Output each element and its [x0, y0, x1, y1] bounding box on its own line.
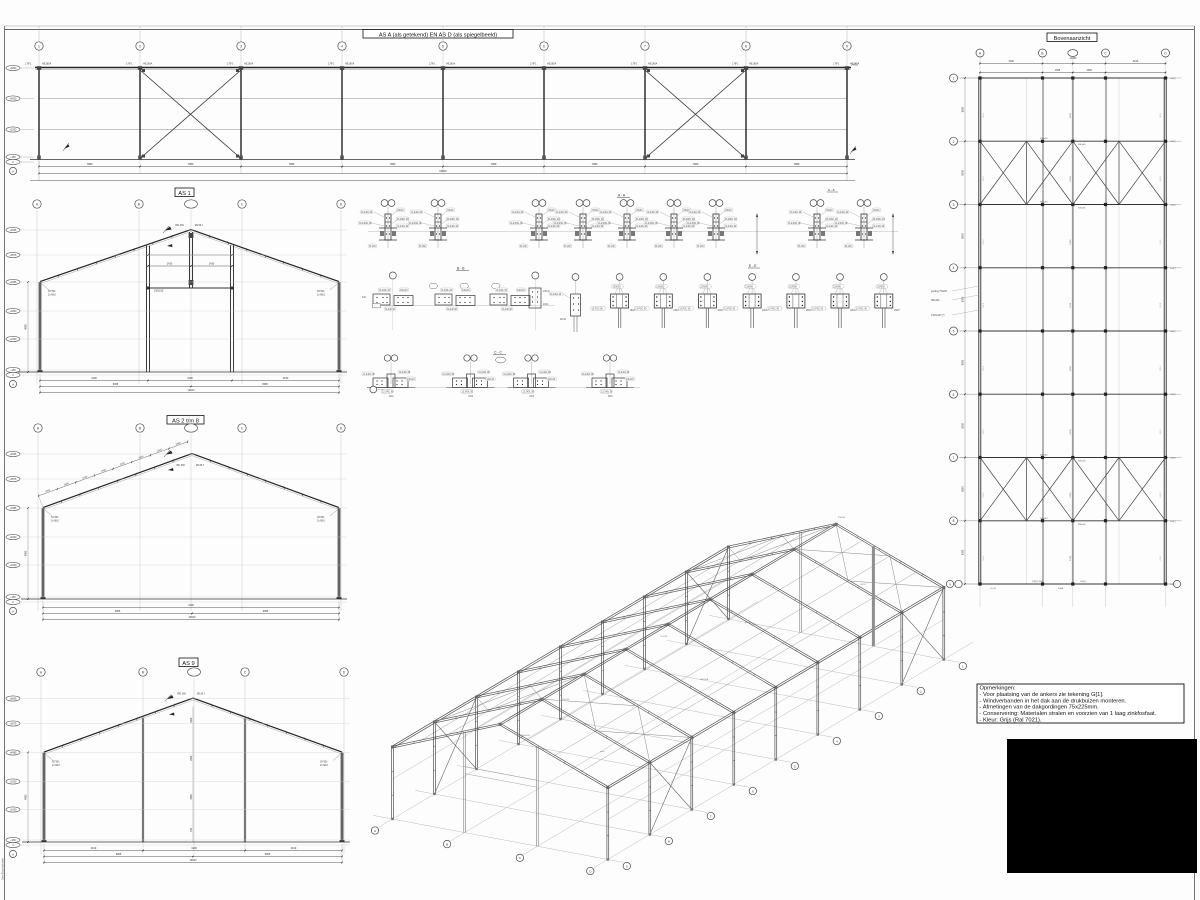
- svg-text:- Windverbanden in het dak aan: - Windverbanden in het dak aan de drukbu…: [980, 698, 1127, 704]
- svg-text:CL240L 90: CL240L 90: [873, 226, 885, 228]
- svg-text:M16: M16: [469, 396, 474, 398]
- svg-text:6: 6: [953, 393, 955, 397]
- svg-text:Ø139.7: Ø139.7: [197, 693, 206, 696]
- svg-text:- Voor plaatsing van de ankers: - Voor plaatsing van de ankers zie teken…: [980, 692, 1104, 698]
- svg-text:CL240SL 90: CL240SL 90: [835, 223, 848, 225]
- svg-text:PL150: PL150: [697, 246, 704, 248]
- svg-text:K100x100 (*): K100x100 (*): [931, 315, 945, 317]
- svg-text:CL240SL 90: CL240SL 90: [598, 223, 611, 225]
- svg-text:4: 4: [341, 45, 343, 49]
- svg-text:CL240L 90: CL240L 90: [636, 226, 648, 228]
- svg-text:240(*): 240(*): [1170, 78, 1176, 80]
- svg-text:+1600: +1600: [10, 338, 17, 341]
- svg-text:3190: 3190: [187, 377, 193, 380]
- svg-text:K80x80: K80x80: [1040, 518, 1048, 520]
- svg-text:3190: 3190: [91, 847, 97, 850]
- svg-text:240A: 240A: [543, 303, 549, 306]
- svg-text:13A090: 13A090: [656, 286, 665, 289]
- svg-text:79040: 79040: [548, 210, 555, 212]
- svg-text:240x15: 240x15: [462, 290, 470, 292]
- svg-text:K80x80: K80x80: [1040, 455, 1048, 457]
- svg-text:+5575: +5575: [10, 254, 17, 257]
- svg-text:11380: 11380: [1070, 57, 1077, 60]
- svg-text:160.8: 160.8: [983, 302, 985, 308]
- svg-text:178*1: 178*1: [429, 63, 436, 66]
- svg-text:1595: 1595: [1087, 70, 1093, 72]
- svg-text:160.8: 160.8: [983, 429, 985, 435]
- svg-text:CL240L 90: CL240L 90: [826, 226, 838, 228]
- svg-text:79040: 79040: [873, 210, 880, 212]
- svg-text:6: 6: [543, 45, 545, 49]
- svg-text:160.8: 160.8: [1160, 302, 1162, 308]
- svg-text:1: 1: [38, 45, 40, 49]
- svg-text:CL240L 90: CL240L 90: [411, 212, 423, 214]
- svg-text:+5575: +5575: [10, 478, 17, 481]
- svg-text:19930: 19930: [190, 859, 198, 862]
- svg-text:8000: 8000: [962, 423, 965, 429]
- svg-text:4985: 4985: [25, 550, 28, 556]
- svg-text:CL240L 90: CL240L 90: [397, 226, 409, 228]
- svg-text:19930: 19930: [189, 616, 197, 619]
- svg-text:IPE360: IPE360: [838, 517, 846, 519]
- svg-text:3190: 3190: [283, 377, 289, 380]
- svg-text:K150: K150: [1070, 239, 1072, 245]
- svg-text:7980: 7980: [289, 162, 295, 166]
- svg-text:PL290C 90: PL290C 90: [725, 219, 737, 221]
- svg-text:K100x100: K100x100: [520, 735, 531, 737]
- svg-text:4985: 4985: [25, 794, 28, 800]
- svg-text:CL240SL 90: CL240SL 90: [554, 223, 567, 225]
- svg-text:3: 3: [240, 45, 242, 49]
- svg-text:A - A: A - A: [618, 194, 626, 198]
- svg-text:K80x80: K80x80: [1078, 524, 1086, 526]
- svg-text:K80x80: K80x80: [1078, 208, 1086, 210]
- svg-text:CL240SL 90: CL240SL 90: [645, 223, 658, 225]
- svg-text:HE180A: HE180A: [446, 63, 456, 66]
- svg-text:3190: 3190: [1133, 60, 1139, 63]
- svg-text:K150: K150: [1070, 365, 1072, 371]
- svg-text:PL290C 90: PL290C 90: [548, 219, 560, 221]
- svg-text:5: 5: [442, 45, 444, 49]
- svg-text:160.8: 160.8: [1160, 112, 1162, 118]
- svg-text:9965: 9965: [263, 610, 269, 613]
- svg-text:Opmerkingen:: Opmerkingen:: [980, 686, 1017, 692]
- svg-text:CL240L 90: CL240L 90: [618, 372, 630, 374]
- svg-text:+4200: +4200: [10, 98, 17, 101]
- svg-text:7980: 7980: [87, 162, 93, 166]
- svg-text:13.PSC 90: 13.PSC 90: [812, 309, 824, 311]
- svg-text:178*1: 178*1: [833, 63, 840, 66]
- svg-text:79040: 79040: [592, 210, 599, 212]
- svg-text:7980: 7980: [794, 162, 800, 166]
- svg-text:13.PSC 90: 13.PSC 90: [635, 309, 647, 311]
- svg-text:240(*): 240(*): [1170, 521, 1176, 523]
- svg-text:19930: 19930: [188, 389, 196, 392]
- svg-text:PL290C 90: PL290C 90: [636, 219, 648, 221]
- svg-text:AS 2 t/m 8: AS 2 t/m 8: [172, 418, 199, 424]
- svg-text:E - E: E - E: [749, 264, 757, 268]
- svg-text:+4985: +4985: [10, 281, 17, 284]
- svg-text:B: B: [142, 671, 144, 675]
- svg-text:C - C: C - C: [494, 351, 502, 355]
- svg-text:K150: K150: [1070, 555, 1072, 561]
- svg-text:160.8: 160.8: [1160, 492, 1162, 498]
- svg-text:13A090: 13A090: [833, 286, 842, 289]
- svg-text:9965: 9965: [116, 853, 122, 856]
- svg-text:160.8: 160.8: [1160, 555, 1162, 561]
- svg-text:K80x80: K80x80: [1078, 144, 1086, 146]
- svg-text:1430: 1430: [209, 263, 215, 266]
- svg-text:A: A: [12, 169, 14, 173]
- svg-text:M16: M16: [389, 396, 394, 398]
- svg-text:160.81: 160.81: [990, 588, 997, 590]
- svg-text:M16: M16: [608, 396, 613, 398]
- svg-text:240x15: 240x15: [517, 290, 525, 292]
- svg-text:+1600: +1600: [10, 809, 17, 812]
- svg-text:CL240C 90: CL240C 90: [443, 374, 455, 376]
- svg-text:9965: 9965: [265, 853, 271, 856]
- svg-text:B: B: [138, 203, 140, 207]
- svg-text:+3200: +3200: [10, 536, 17, 539]
- svg-text:B - B: B - B: [457, 267, 465, 271]
- svg-text:8000: 8000: [962, 170, 965, 176]
- svg-text:+150: +150: [10, 839, 16, 842]
- svg-text:VL240L 90: VL240L 90: [379, 290, 391, 292]
- svg-text:9965: 9965: [113, 383, 119, 386]
- svg-text:4985: 4985: [190, 794, 193, 800]
- svg-text:160.8: 160.8: [983, 555, 985, 561]
- svg-text:gord.: gord.: [600, 750, 605, 753]
- svg-text:13A090: 13A090: [877, 286, 886, 289]
- svg-text:CL240L 90: CL240L 90: [689, 212, 701, 214]
- svg-text:240(1) 240: 240(1) 240: [1032, 581, 1043, 583]
- svg-text:K80x80: K80x80: [1040, 138, 1048, 140]
- svg-text:CL240SL 90: CL240SL 90: [359, 223, 372, 225]
- svg-text:160.8: 160.8: [983, 365, 985, 371]
- svg-text:240(1): 240(1): [543, 291, 550, 293]
- svg-text:gording 75x225: gording 75x225: [931, 290, 948, 293]
- svg-text:8000: 8000: [962, 359, 965, 365]
- svg-text:178*1: 178*1: [328, 63, 335, 66]
- svg-text:HE180A: HE180A: [749, 63, 759, 66]
- svg-text:240x15: 240x15: [407, 379, 415, 381]
- svg-text:CL240C 90: CL240C 90: [582, 374, 594, 376]
- svg-text:WL90: WL90: [560, 319, 567, 321]
- svg-text:AS A (als getekend) EN AS D (a: AS A (als getekend) EN AS D (als spiegel…: [379, 32, 497, 38]
- svg-text:CL240L 90: CL240L 90: [512, 212, 524, 214]
- svg-text:13A090: 13A090: [700, 286, 709, 289]
- svg-text:180A*: 180A*: [717, 309, 723, 312]
- svg-text:13.PSC 90: 13.PSC 90: [679, 309, 691, 311]
- svg-text:+150: +150: [10, 596, 16, 599]
- svg-text:160.8: 160.8: [1160, 429, 1162, 435]
- svg-text:PL150: PL150: [520, 246, 527, 248]
- svg-text:B: B: [139, 427, 141, 431]
- svg-text:7: 7: [644, 45, 646, 49]
- svg-text:IPE 360: IPE 360: [175, 224, 185, 227]
- svg-text:CL240L 90: CL240L 90: [550, 294, 562, 296]
- svg-text:PL150: PL150: [798, 246, 805, 248]
- svg-text:8000: 8000: [962, 549, 965, 555]
- svg-text:178*1: 178*1: [732, 63, 739, 66]
- svg-text:HE180A: HE180A: [42, 63, 52, 66]
- svg-text:240(*): 240(*): [1170, 205, 1176, 207]
- svg-text:7980: 7980: [693, 162, 699, 166]
- svg-text:CL240SL 90: CL240SL 90: [409, 223, 422, 225]
- svg-text:4: 4: [953, 266, 955, 270]
- svg-text:7: 7: [953, 456, 955, 460]
- svg-text:9965: 9965: [115, 610, 121, 613]
- svg-text:160.8: 160.8: [983, 239, 985, 245]
- svg-text:a - a: a - a: [828, 188, 835, 192]
- svg-text:PL150: PL150: [655, 246, 662, 248]
- svg-text:CL240 90: CL240 90: [385, 309, 396, 311]
- svg-text:160.8: 160.8: [1160, 176, 1162, 182]
- svg-text:+5575: +5575: [10, 723, 17, 726]
- svg-text:3190: 3190: [291, 847, 297, 850]
- svg-text:PL290C 90: PL290C 90: [683, 219, 695, 221]
- svg-text:240x15: 240x15: [487, 379, 495, 381]
- svg-text:150: 150: [190, 827, 193, 832]
- svg-text:7980: 7980: [592, 162, 598, 166]
- svg-text:HE180A: HE180A: [244, 63, 254, 66]
- svg-text:240x15: 240x15: [548, 379, 556, 381]
- svg-text:2x M16: 2x M16: [48, 294, 57, 297]
- svg-text:3190: 3190: [1009, 60, 1015, 63]
- svg-text:CL240 90: CL240 90: [447, 309, 458, 311]
- svg-text:CL240C 90: CL240C 90: [504, 374, 516, 376]
- svg-text:- Afmetingen van de dakgording: - Afmetingen van de dakgordingen 75x225m…: [980, 705, 1100, 711]
- svg-text:240x15: 240x15: [400, 290, 408, 292]
- svg-text:13A090: 13A090: [745, 286, 754, 289]
- svg-text:240(*): 240(*): [1170, 584, 1176, 586]
- svg-text:PL290C 90: PL290C 90: [397, 219, 409, 221]
- svg-text:2x M16: 2x M16: [317, 520, 326, 523]
- svg-text:178*1: 178*1: [530, 63, 537, 66]
- svg-text:7980: 7980: [188, 162, 194, 166]
- svg-text:CL240SL 90: CL240SL 90: [788, 223, 801, 225]
- svg-text:160.8: 160.8: [1160, 239, 1162, 245]
- svg-text:13.PSC 90: 13.PSC 90: [856, 309, 868, 311]
- svg-text:HE180A: HE180A: [648, 63, 658, 66]
- svg-text:240(*): 240(*): [1170, 394, 1176, 396]
- svg-text:2x M16: 2x M16: [317, 294, 326, 297]
- svg-text:2x M16: 2x M16: [320, 764, 329, 767]
- svg-text:3190: 3190: [188, 604, 194, 607]
- svg-text:PL290C 90: PL290C 90: [873, 219, 885, 221]
- svg-text:240(*): 240(*): [1170, 141, 1176, 143]
- svg-text:VL240L 90: VL240L 90: [441, 290, 453, 292]
- svg-text:VL240L 90: VL240L 90: [496, 290, 508, 292]
- svg-text:8000: 8000: [962, 233, 965, 239]
- svg-text:13.240L 90: 13.240L 90: [601, 392, 613, 394]
- svg-text:1560: 1560: [190, 717, 193, 723]
- svg-text:8000: 8000: [962, 106, 965, 112]
- svg-text:13A090: 13A090: [613, 286, 622, 289]
- svg-text:+2200: +2200: [10, 129, 17, 132]
- svg-text:2: 2: [139, 45, 141, 49]
- svg-text:13.PSC 90: 13.PSC 90: [592, 309, 604, 311]
- svg-text:+3200: +3200: [10, 310, 17, 313]
- svg-text:Ø139.7: Ø139.7: [195, 224, 204, 227]
- svg-text:A: A: [12, 609, 14, 613]
- svg-text:178*1: 178*1: [25, 63, 32, 66]
- svg-text:3190: 3190: [91, 377, 97, 380]
- svg-text:13.240L 90: 13.240L 90: [523, 392, 535, 394]
- svg-text:75x225: 75x225: [660, 636, 668, 638]
- svg-text:160.8: 160.8: [983, 492, 985, 498]
- svg-text:1595: 1595: [1055, 70, 1061, 72]
- svg-text:160.8: 160.8: [1160, 365, 1162, 371]
- svg-text:2x M16: 2x M16: [51, 520, 60, 523]
- svg-text:9: 9: [846, 45, 848, 49]
- svg-text:+4985: +4985: [10, 752, 17, 755]
- svg-text:IPE 360: IPE 360: [176, 464, 186, 467]
- svg-text:CL240L 90: CL240L 90: [447, 226, 459, 228]
- svg-text:CL240L 90: CL240L 90: [725, 226, 737, 228]
- svg-text:A: A: [12, 852, 14, 856]
- svg-text:79040: 79040: [397, 210, 404, 212]
- svg-text:CL240C 90: CL240C 90: [363, 374, 375, 376]
- svg-text:3190: 3190: [191, 847, 197, 850]
- svg-text:150x150: 150x150: [154, 290, 164, 293]
- svg-text:+6065: +6065: [10, 453, 17, 456]
- svg-text:K100: K100: [745, 622, 751, 624]
- svg-text:CL240L 90: CL240L 90: [399, 372, 411, 374]
- svg-text:1430: 1430: [167, 263, 173, 266]
- svg-text:PL290C 90: PL290C 90: [592, 219, 604, 221]
- svg-text:178*1: 178*1: [126, 63, 133, 66]
- svg-text:240(*): 240(*): [1170, 331, 1176, 333]
- svg-text:- Conservering: Materialen str: - Conservering: Materialen stralen en vo…: [980, 711, 1157, 717]
- svg-text:3: 3: [953, 203, 955, 207]
- svg-text:+6065: +6065: [10, 698, 17, 701]
- svg-text:79040: 79040: [636, 210, 643, 212]
- svg-text:240(*): 240(*): [1170, 268, 1176, 270]
- svg-text:79040: 79040: [826, 210, 833, 212]
- svg-text:B: B: [1041, 52, 1043, 56]
- svg-text:13.240L 90: 13.240L 90: [462, 392, 474, 394]
- svg-text:A: A: [12, 382, 14, 386]
- svg-text:79040: 79040: [725, 210, 732, 212]
- svg-text:+150: +150: [10, 369, 16, 372]
- svg-text:7980: 7980: [390, 162, 396, 166]
- svg-text:B: B: [446, 843, 448, 847]
- svg-text:178*1: 178*1: [631, 63, 638, 66]
- svg-text:160.8: 160.8: [983, 112, 985, 118]
- svg-text:HE180A: HE180A: [345, 63, 355, 66]
- svg-text:PL150: PL150: [845, 246, 852, 248]
- svg-text:1560: 1560: [190, 755, 193, 761]
- svg-text:K150: K150: [1070, 112, 1072, 118]
- svg-text:CL240L 90: CL240L 90: [540, 372, 552, 374]
- svg-text:M16: M16: [530, 396, 535, 398]
- svg-text:Bovenaanzicht: Bovenaanzicht: [1054, 36, 1091, 42]
- svg-text:CL240L 90: CL240L 90: [479, 372, 491, 374]
- svg-text:240(1): 240(1): [851, 64, 858, 67]
- svg-text:8000: 8000: [962, 486, 965, 492]
- svg-text:13.PSC 90: 13.PSC 90: [724, 309, 736, 311]
- svg-text:AS 9: AS 9: [182, 661, 195, 667]
- svg-text:K150: K150: [1070, 302, 1072, 308]
- svg-text:- Kleur: Grijs (Ral 7021).: - Kleur: Grijs (Ral 7021).: [980, 717, 1042, 723]
- svg-text:HE180A: HE180A: [547, 63, 557, 66]
- svg-text:+6000: +6000: [10, 67, 17, 70]
- svg-text:79040: 79040: [447, 210, 454, 212]
- svg-text:+3200: +3200: [10, 781, 17, 784]
- svg-text:+6065: +6065: [10, 229, 17, 232]
- svg-text:CL240L 90: CL240L 90: [790, 212, 802, 214]
- svg-text:K150: K150: [1070, 176, 1072, 182]
- svg-text:1: 1: [953, 77, 955, 81]
- svg-text:PL290C 90: PL290C 90: [826, 219, 838, 221]
- svg-text:63840: 63840: [439, 169, 447, 173]
- svg-text:K150: K150: [1070, 492, 1072, 498]
- svg-text:PL150: PL150: [564, 246, 571, 248]
- svg-text:9965: 9965: [262, 383, 268, 386]
- svg-text:2x M16: 2x M16: [52, 764, 61, 767]
- svg-text:CL240L 90: CL240L 90: [361, 212, 373, 214]
- svg-text:K80x80: K80x80: [1040, 202, 1048, 204]
- svg-text:CL240L 90: CL240L 90: [837, 212, 849, 214]
- svg-text:160.8: 160.8: [860, 584, 866, 586]
- svg-text:IPE 360: IPE 360: [177, 693, 187, 696]
- svg-text:PL150: PL150: [369, 246, 376, 248]
- svg-text:PL150: PL150: [608, 246, 615, 248]
- svg-text:240x15: 240x15: [626, 379, 634, 381]
- svg-text:13.PSC 90: 13.PSC 90: [768, 309, 780, 311]
- svg-text:Ø139.7: Ø139.7: [196, 464, 205, 467]
- svg-text:13.240L 90: 13.240L 90: [382, 392, 394, 394]
- svg-text:4985: 4985: [25, 324, 28, 330]
- svg-text:2: 2: [953, 140, 955, 144]
- svg-text:8: 8: [745, 45, 747, 49]
- svg-text:+150: +150: [10, 156, 16, 159]
- svg-text:180A*: 180A*: [894, 309, 900, 312]
- svg-text:CL240 90: CL240 90: [502, 309, 513, 311]
- svg-text:CL240L 90: CL240L 90: [592, 226, 604, 228]
- svg-text:AS 1: AS 1: [178, 191, 191, 197]
- svg-text:HE180A: HE180A: [143, 63, 153, 66]
- svg-text:CL240SL 90: CL240SL 90: [510, 223, 523, 225]
- svg-text:Gea Bouwtechniek: Gea Bouwtechniek: [1, 858, 5, 880]
- svg-text:5: 5: [953, 330, 955, 334]
- svg-text:+1600: +1600: [10, 564, 17, 567]
- svg-text:CL240L 90: CL240L 90: [548, 226, 560, 228]
- svg-text:8: 8: [953, 519, 955, 523]
- svg-text:PL150: PL150: [419, 246, 426, 248]
- svg-text:178*1: 178*1: [227, 63, 234, 66]
- svg-text:+4985: +4985: [10, 507, 17, 510]
- svg-text:PL290C 90: PL290C 90: [447, 219, 459, 221]
- svg-text:7980: 7980: [491, 162, 497, 166]
- svg-text:K150: K150: [1070, 429, 1072, 435]
- svg-text:240A: 240A: [1058, 587, 1064, 590]
- svg-text:HE180A: HE180A: [700, 678, 709, 681]
- svg-text:K80x80: K80x80: [1078, 461, 1086, 463]
- svg-text:A: A: [374, 829, 376, 833]
- svg-text:CL240L 90: CL240L 90: [647, 212, 659, 214]
- svg-text:CL240SL 90: CL240SL 90: [687, 223, 700, 225]
- svg-text:CL240L 90: CL240L 90: [556, 212, 568, 214]
- svg-text:160.8: 160.8: [983, 176, 985, 182]
- svg-text:8000: 8000: [962, 296, 965, 302]
- svg-text:13A090: 13A090: [789, 286, 798, 289]
- svg-text:240(1): 240(1): [1080, 581, 1087, 583]
- svg-text:CL240L 90: CL240L 90: [600, 212, 612, 214]
- svg-text:CL240L 90: CL240L 90: [683, 226, 695, 228]
- svg-text:240(*): 240(*): [1170, 458, 1176, 460]
